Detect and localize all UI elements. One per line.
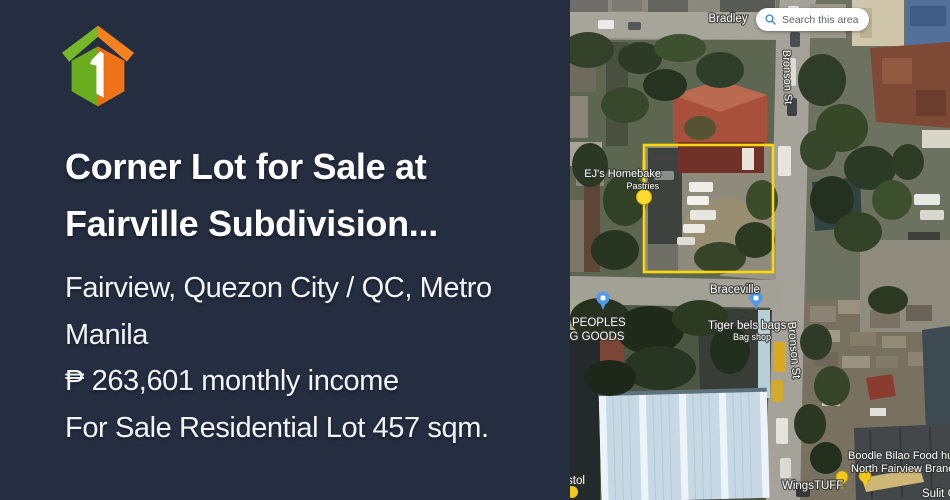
listing-sale-info: For Sale Residential Lot 457 sqm.: [65, 412, 489, 444]
left-panel: Corner Lot for Sale at Fairville Subdivi…: [0, 0, 570, 500]
search-icon: [765, 14, 776, 25]
satellite-map-image: Bradley Bronson St EJ's Homebake Pastrie…: [570, 0, 950, 500]
search-button-label: Search this area: [782, 14, 858, 26]
poi-label-boodle-line2[interactable]: North Fairview Branch: [851, 463, 950, 475]
title-line-1: Corner Lot for Sale at: [65, 146, 426, 187]
poi-label-sulit[interactable]: Sulit G: [922, 488, 950, 500]
listing-location-line-1: Fairview, Quezon City / QC, Metro: [65, 272, 492, 304]
listing-location-line-2: Manila: [65, 319, 148, 351]
onepropertee-logo-icon: [58, 24, 138, 112]
street-label-bradley: Bradley: [709, 13, 748, 25]
street-label-braceville: Braceville: [710, 284, 760, 296]
listing-title: Corner Lot for Sale at Fairville Subdivi…: [65, 138, 545, 252]
map-canvas[interactable]: Bradley Bronson St EJ's Homebake Pastrie…: [570, 0, 950, 500]
poi-label-ejs-pastries[interactable]: Pastries: [626, 181, 659, 191]
listing-details: Fairview, Quezon City / QC, Metro Manila…: [65, 265, 555, 451]
listing-income: ₱ 263,601 monthly income: [65, 365, 399, 397]
street-label-bronson-top: Bronson St: [780, 50, 794, 105]
poi-label-wingstuff[interactable]: WingsTUFF: [782, 480, 843, 492]
listing-share-card: Corner Lot for Sale at Fairville Subdivi…: [0, 0, 950, 500]
poi-label-ejs-homebake[interactable]: EJ's Homebake: [584, 168, 661, 180]
poi-label-peoples-line1[interactable]: PEOPLES: [572, 317, 626, 329]
poi-label-peoples-line2[interactable]: ING GOODS: [570, 331, 625, 343]
title-line-2: Fairville Subdivision...: [65, 203, 438, 244]
poi-label-bristol-partial[interactable]: stol: [570, 475, 585, 487]
poi-label-tiger-bels[interactable]: Tiger bels bags: [708, 320, 786, 332]
poi-label-boodle-line1[interactable]: Boodle Bilao Food hub: [848, 450, 950, 462]
search-this-area-button[interactable]: Search this area: [756, 8, 869, 31]
poi-label-bag-shop[interactable]: Bag shop: [733, 332, 771, 342]
